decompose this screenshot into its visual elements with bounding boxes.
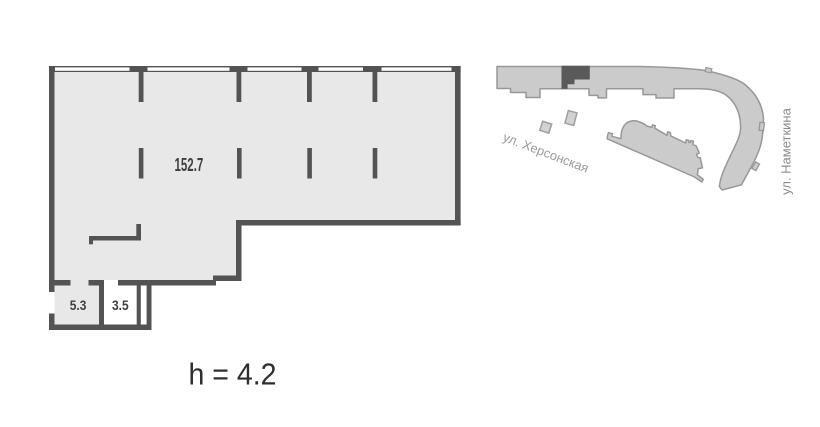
svg-text:ул. Херсонская: ул. Херсонская	[501, 129, 591, 175]
svg-text:ул. Наметкина: ул. Наметкина	[779, 107, 794, 194]
svg-text:h = 4.2: h = 4.2	[189, 357, 277, 392]
svg-text:3.5: 3.5	[112, 297, 129, 313]
svg-text:5.3: 5.3	[70, 297, 87, 313]
svg-text:152.7: 152.7	[175, 155, 204, 175]
